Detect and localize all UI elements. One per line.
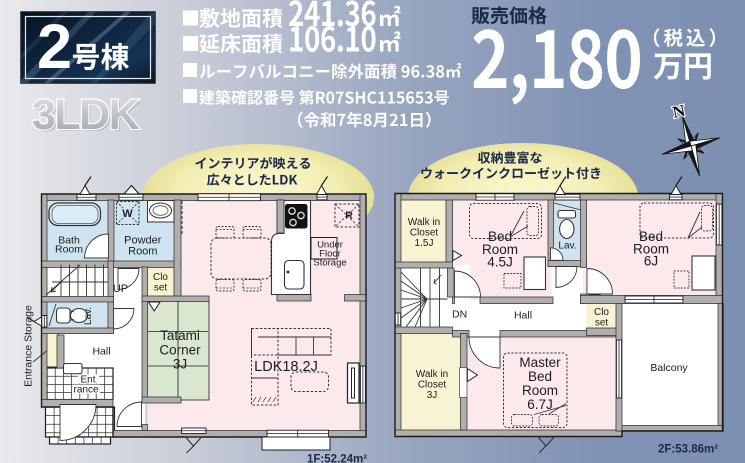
svg-text:Room: Room	[128, 246, 157, 258]
svg-text:Clo: Clo	[594, 307, 609, 318]
svg-text:Walk in: Walk in	[408, 217, 440, 228]
svg-text:Storage: Storage	[313, 258, 346, 269]
svg-text:DN: DN	[452, 309, 467, 321]
svg-text:Closet: Closet	[410, 228, 439, 239]
svg-text:Corner: Corner	[159, 343, 201, 358]
svg-text:Room: Room	[522, 383, 558, 398]
svg-text:3J: 3J	[427, 390, 438, 401]
svg-text:3LDK: 3LDK	[32, 91, 140, 139]
svg-text:Master: Master	[519, 355, 561, 370]
svg-text:Hall: Hall	[92, 346, 110, 358]
svg-text:set: set	[154, 283, 168, 294]
svg-text:2F:53.86m²: 2F:53.86m²	[658, 444, 718, 456]
svg-text:6.7J: 6.7J	[527, 397, 553, 412]
svg-text:UP: UP	[113, 283, 128, 295]
svg-text:Bed: Bed	[528, 369, 552, 384]
svg-text:1.5J: 1.5J	[415, 238, 434, 249]
svg-text:set: set	[595, 318, 609, 329]
svg-text:6J: 6J	[644, 254, 658, 269]
svg-text:Room: Room	[55, 244, 83, 256]
svg-text:Lav.: Lav.	[83, 307, 94, 325]
svg-text:Closet: Closet	[418, 380, 447, 391]
svg-text:Entrance Storage: Entrance Storage	[23, 305, 35, 387]
svg-text:Hall: Hall	[514, 310, 532, 322]
svg-text:2: 2	[37, 12, 72, 82]
svg-text:Lav.: Lav.	[558, 241, 576, 252]
svg-text:Clo: Clo	[153, 272, 168, 283]
svg-text:3J: 3J	[173, 357, 187, 372]
svg-text:4.5J: 4.5J	[487, 255, 513, 270]
svg-text:Walk in: Walk in	[416, 369, 448, 380]
svg-text:Tatami: Tatami	[160, 328, 200, 343]
svg-text:1F:52.24m²: 1F:52.24m²	[307, 454, 367, 463]
svg-text:W: W	[122, 208, 133, 220]
svg-text:R: R	[345, 210, 353, 222]
svg-text:rance: rance	[73, 385, 98, 396]
svg-text:LDK18.2J: LDK18.2J	[254, 359, 318, 375]
svg-text:Balcony: Balcony	[650, 362, 688, 374]
